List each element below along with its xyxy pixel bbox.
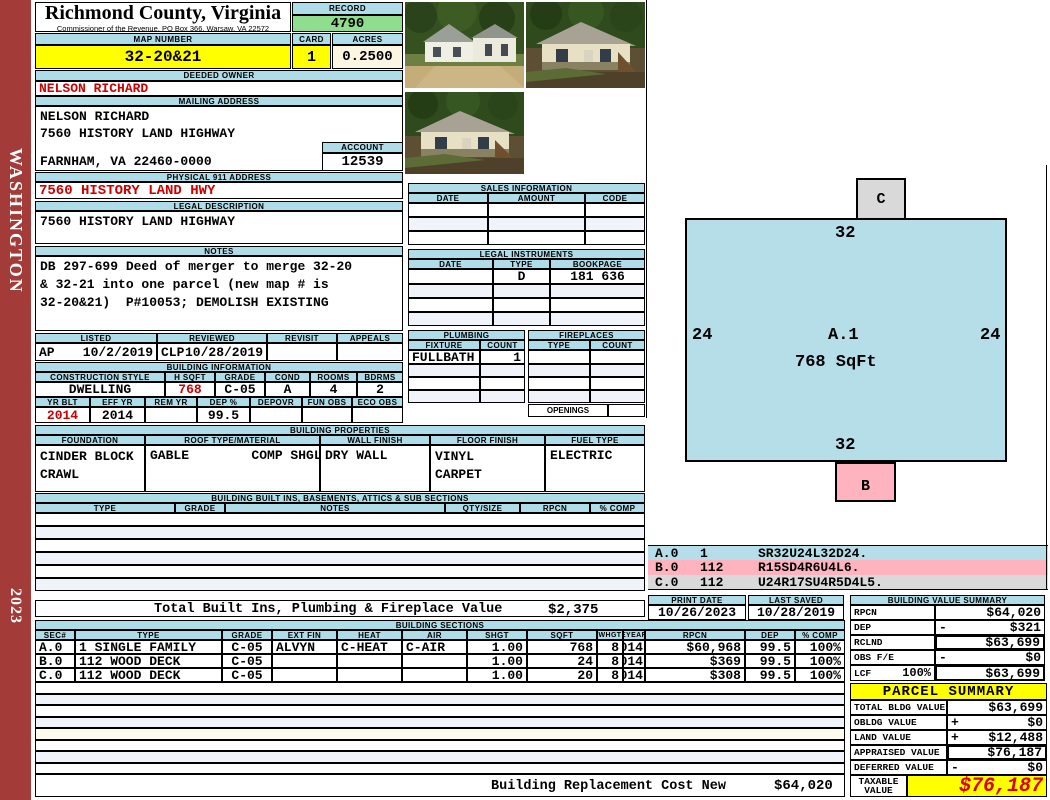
- ps-label-land: LAND VALUE: [850, 730, 947, 745]
- built-ins-total-row: Total Built Ins, Plumbing & Fireplace Va…: [35, 600, 645, 617]
- yrblt-label: YR BLT: [35, 397, 90, 407]
- sales-information-label: SALES INFORMATION: [408, 183, 645, 193]
- listed-code: AP: [39, 345, 55, 360]
- li-row: [408, 298, 493, 312]
- built-ins-row: [35, 578, 645, 591]
- bs-row-c-eyear: 2014: [623, 668, 645, 682]
- sketch-dim-right: 24: [980, 326, 1000, 345]
- ps-land-value: $12,488: [988, 730, 1043, 745]
- bs-h-dep: DEP: [745, 630, 795, 640]
- bs-row-c-heat: [337, 668, 402, 682]
- plumbing-count-label: COUNT: [480, 340, 525, 350]
- bs-row-b-type: 112 WOOD DECK: [75, 654, 222, 668]
- plus-sign: +: [951, 730, 959, 745]
- legal-description-label: LEGAL DESCRIPTION: [35, 201, 403, 211]
- county-title: Richmond County, Virginia: [36, 3, 290, 24]
- vs-rpcn-label: RPCN: [854, 607, 877, 618]
- openings-label: OPENINGS: [528, 404, 608, 417]
- ecoobs-label: ECO OBS: [352, 397, 403, 407]
- sketch-dim-top: 32: [835, 224, 855, 243]
- bs-row-b-comp: 100%: [795, 654, 845, 668]
- vs-value-dep: - $321: [935, 620, 1045, 635]
- fixture-label: FIXTURE: [408, 340, 480, 350]
- replacement-cost-label: Building Replacement Cost New: [491, 779, 726, 794]
- bs-row-c-comp: 100%: [795, 668, 845, 682]
- legend-code: B.0: [648, 560, 700, 575]
- notes-line-3: 32-20&21) P#10053; DEMOLISH EXISTING: [40, 295, 329, 310]
- listed-value: AP 10/2/2019: [35, 343, 157, 361]
- vs-lcf-label: LCF: [854, 668, 871, 679]
- bs-row-b-air: [402, 654, 467, 668]
- built-ins-row: [35, 539, 645, 552]
- floor-finish-line-2: CARPET: [435, 466, 482, 483]
- appeals-label: APPEALS: [337, 333, 403, 343]
- bs-row-c-air: [402, 668, 467, 682]
- openings-value: [608, 404, 645, 417]
- bi-notes-label: NOTES: [225, 503, 445, 513]
- mailing-line-2: 7560 HISTORY LAND HIGHWAY: [40, 126, 235, 141]
- bs-row-c-sec: C.0: [35, 668, 75, 682]
- fireplace-row: [528, 377, 590, 390]
- li-type-value: D: [493, 269, 550, 284]
- bs-row-a-rpcn: $60,968: [645, 640, 745, 654]
- ps-value-deferred: - $0: [947, 760, 1047, 775]
- sales-row: [408, 203, 488, 217]
- bs-empty-row: [35, 763, 845, 774]
- listed-label: LISTED: [35, 333, 157, 343]
- bs-row-c-rpcn: $308: [645, 668, 745, 682]
- fireplace-type-value: [528, 350, 590, 364]
- bs-row-a-heat: C-HEAT: [337, 640, 402, 654]
- li-row: [408, 284, 493, 298]
- hsqft-label: H SQFT: [165, 372, 215, 382]
- bs-h-rpcn: RPCN: [645, 630, 745, 640]
- listed-date: 10/2/2019: [83, 345, 153, 360]
- bs-empty-row: [35, 740, 845, 751]
- bs-row-c-type: 112 WOOD DECK: [75, 668, 222, 682]
- li-date-value: [408, 269, 493, 284]
- ps-value-land: + $12,488: [947, 730, 1047, 745]
- county-subtitle: Commissioner of the Revenue, PO Box 366,…: [36, 24, 290, 33]
- notes-label: NOTES: [35, 246, 403, 256]
- li-bookpage-label: BOOKPAGE: [550, 259, 645, 269]
- fireplace-row: [528, 390, 590, 403]
- bs-row-a-comp: 100%: [795, 640, 845, 654]
- sales-code-label: CODE: [585, 193, 645, 203]
- fireplace-count-label: COUNT: [590, 340, 645, 350]
- bs-row-c-shgt: 1.00: [467, 668, 527, 682]
- sales-row: [488, 203, 585, 217]
- bs-h-heat: HEAT: [337, 630, 402, 640]
- building-value-summary-label: BUILDING VALUE SUMMARY: [850, 595, 1045, 605]
- sketch-dim-bottom: 32: [835, 436, 855, 455]
- replacement-cost-row: Building Replacement Cost New $64,020: [35, 774, 845, 797]
- district-vertical-label: WASHINGTON: [5, 148, 26, 294]
- bs-row-a-grade: C-05: [222, 640, 272, 654]
- bi-grade-label: GRADE: [175, 503, 225, 513]
- bdrms-label: BDRMS: [357, 372, 403, 382]
- fuel-type-value: ELECTRIC: [545, 445, 645, 492]
- bs-row-a-dep: 99.5: [745, 640, 795, 654]
- physical-911-value: 7560 HISTORY LAND HWY: [35, 182, 403, 199]
- record-value: 4790: [292, 15, 403, 32]
- property-photo-3[interactable]: [405, 92, 524, 174]
- property-record-card: WASHINGTON 2023 Richmond County, Virgini…: [0, 0, 1050, 800]
- rooms-value: 4: [310, 382, 357, 397]
- floor-finish-label: FLOOR FINISH: [430, 435, 545, 445]
- divider-sketch-right: [1046, 165, 1047, 590]
- grade-value: C-05: [215, 382, 265, 397]
- bi-qty-label: QTY/SIZE: [445, 503, 520, 513]
- effyr-label: EFF YR: [90, 397, 145, 407]
- built-ins-row: [35, 513, 645, 526]
- vs-label-obs: OBS F/E: [850, 650, 935, 665]
- bs-row-a-sqft: 768: [527, 640, 597, 654]
- sales-row: [408, 217, 488, 231]
- wall-finish-value: DRY WALL: [320, 445, 430, 492]
- sketch-main-section: 32 24 A.1 768 SqFt 24 32: [685, 218, 1007, 462]
- bs-h-eyear: EYEAR: [623, 630, 645, 640]
- minus-sign: -: [951, 760, 959, 775]
- depovr-value: [250, 407, 302, 423]
- roof-value: GABLE COMP SHGLS: [145, 445, 320, 492]
- wall-finish-label: WALL FINISH: [320, 435, 430, 445]
- physical-911-label: PHYSICAL 911 ADDRESS: [35, 172, 403, 182]
- legal-description-value: 7560 HISTORY LAND HIGHWAY: [35, 211, 403, 244]
- county-title-box: Richmond County, Virginia Commissioner o…: [35, 2, 291, 32]
- ps-obldg-label: OBLDG VALUE: [854, 717, 917, 728]
- ps-label-deferred: DEFERRED VALUE: [850, 760, 947, 775]
- fuel-type-label: FUEL TYPE: [545, 435, 645, 445]
- bs-row-b-rpcn: $369: [645, 654, 745, 668]
- bs-h-sec: SEC#: [35, 630, 75, 640]
- vs-obs-value: $0: [1025, 650, 1041, 665]
- depovr-label: DEPOVR: [250, 397, 302, 407]
- deeded-owner-label: DEEDED OWNER: [35, 70, 403, 81]
- ps-obldg-value: $0: [1027, 715, 1043, 730]
- replacement-cost-value: $64,020: [774, 778, 833, 794]
- deeded-owner-value: NELSON RICHARD: [35, 81, 403, 96]
- sales-row: [585, 217, 645, 231]
- account-label: ACCOUNT: [322, 142, 403, 153]
- bi-type-label: TYPE: [35, 503, 175, 513]
- legal-instruments-label: LEGAL INSTRUMENTS: [408, 249, 645, 259]
- li-date-label: DATE: [408, 259, 493, 269]
- sketch-section-b-label: B: [861, 478, 870, 495]
- bs-row-c-dep: 99.5: [745, 668, 795, 682]
- parcel-summary-header: PARCEL SUMMARY: [850, 683, 1047, 700]
- effyr-value: 2014: [90, 407, 145, 423]
- bs-row-a-eyear: 2014: [623, 640, 645, 654]
- record-label: RECORD: [292, 2, 403, 15]
- vs-rclnd-label: RCLND: [854, 637, 883, 648]
- vs-lcf-pct: 100%: [902, 666, 931, 680]
- bs-row-b-whgt: 8: [597, 654, 623, 668]
- roof-label: ROOF TYPE/MATERIAL: [145, 435, 320, 445]
- acres-label: ACRES: [332, 33, 403, 45]
- bs-h-type: TYPE: [75, 630, 222, 640]
- built-ins-label: BUILDING BUILT INS, BASEMENTS, ATTICS & …: [35, 493, 645, 503]
- vs-value-rclnd: $63,699: [935, 635, 1045, 650]
- sketch-section-c-box: C: [856, 178, 906, 220]
- bi-comp-label: % COMP: [590, 503, 645, 513]
- year-district-sidebar: WASHINGTON 2023: [0, 0, 31, 800]
- plumbing-row: [480, 377, 525, 390]
- remyr-label: REM YR: [145, 397, 197, 407]
- rooms-label: ROOMS: [310, 372, 357, 382]
- bdrms-value: 2: [357, 382, 403, 397]
- bs-h-shgt: SHGT: [467, 630, 527, 640]
- li-row: [550, 298, 645, 312]
- ps-value-obldg: + $0: [947, 715, 1047, 730]
- card-label: CARD: [292, 33, 331, 45]
- vs-obs-label: OBS F/E: [854, 652, 894, 663]
- sales-row: [488, 231, 585, 245]
- fireplace-row: [528, 364, 590, 377]
- sketch-legend-row-a: A.0 1 SR32U24L32D24.: [648, 545, 1048, 560]
- li-row: [550, 284, 645, 298]
- bs-row-a-whgt: 8: [597, 640, 623, 654]
- notes-box: DB 297-699 Deed of merger to merge 32-20…: [35, 256, 403, 331]
- print-date-label: PRINT DATE: [648, 595, 746, 605]
- built-ins-row: [35, 526, 645, 539]
- notes-line-1: DB 297-699 Deed of merger to merge 32-20: [40, 259, 352, 274]
- li-row: [493, 312, 550, 326]
- li-row: [550, 312, 645, 326]
- appeals-value: [337, 343, 403, 361]
- mailing-address-label: MAILING ADDRESS: [35, 96, 403, 106]
- mailing-line-1: NELSON RICHARD: [40, 109, 149, 124]
- construction-style-value: DWELLING: [35, 382, 165, 397]
- plus-sign: +: [951, 715, 959, 730]
- account-value: 12539: [322, 153, 403, 171]
- ps-deferred-value: $0: [1027, 760, 1043, 775]
- cond-value: A: [265, 382, 310, 397]
- bs-row-c-grade: C-05: [222, 668, 272, 682]
- plumbing-row: [408, 364, 480, 377]
- ps-label-totalbldg: TOTAL BLDG VALUE: [850, 700, 947, 715]
- cond-label: COND: [265, 372, 310, 382]
- yrblt-value: 2014: [35, 407, 90, 423]
- fireplace-count-value: [590, 350, 645, 364]
- vs-value-obs: - $0: [935, 650, 1045, 665]
- building-information-label: BUILDING INFORMATION: [35, 362, 403, 372]
- ps-value-totalbldg: $63,699: [947, 700, 1047, 715]
- bs-row-a-shgt: 1.00: [467, 640, 527, 654]
- bs-h-comp: % COMP: [795, 630, 845, 640]
- li-row: [408, 312, 493, 326]
- fireplace-row: [590, 390, 645, 403]
- built-ins-row: [35, 552, 645, 565]
- reviewed-value: CLP 10/28/2019: [157, 343, 267, 361]
- sales-row: [488, 217, 585, 231]
- construction-style-label: CONSTRUCTION STYLE: [35, 372, 165, 382]
- plumbing-row: [408, 377, 480, 390]
- ecoobs-value: [352, 407, 403, 423]
- fireplace-type-label: TYPE: [528, 340, 590, 350]
- plumbing-label: PLUMBING: [408, 330, 525, 340]
- reviewed-code: CLP: [161, 345, 184, 360]
- floor-finish-line-1: VINYL: [435, 448, 474, 465]
- building-sections-label: BUILDING SECTIONS: [35, 620, 845, 630]
- bs-h-air: AIR: [402, 630, 467, 640]
- sales-date-label: DATE: [408, 193, 488, 203]
- ps-label-obldg: OBLDG VALUE: [850, 715, 947, 730]
- funobs-label: FUN OBS: [302, 397, 352, 407]
- minus-sign: -: [939, 650, 947, 665]
- fixture-count-value: 1: [480, 350, 525, 364]
- bs-row-b-sqft: 24: [527, 654, 597, 668]
- sketch-dim-left: 24: [692, 326, 712, 345]
- plumbing-row: [480, 390, 525, 403]
- legend-qty: 112: [700, 575, 758, 590]
- bs-row-c-extfin: [272, 668, 337, 682]
- built-ins-row: [35, 565, 645, 578]
- bs-row-b-dep: 99.5: [745, 654, 795, 668]
- map-number-label: MAP NUMBER: [35, 33, 291, 45]
- bs-row-b-heat: [337, 654, 402, 668]
- vs-dep-value: $321: [1010, 620, 1041, 635]
- revisit-value: [267, 343, 337, 361]
- deppct-label: DEP %: [197, 397, 250, 407]
- bs-row-a-type: 1 SINGLE FAMILY: [75, 640, 222, 654]
- remyr-value: [145, 407, 197, 423]
- funobs-value: [302, 407, 352, 423]
- bs-row-c-sqft: 20: [527, 668, 597, 682]
- bs-row-c-whgt: 8: [597, 668, 623, 682]
- fireplaces-label: FIREPLACES: [528, 330, 645, 340]
- sketch-section-sqft: 768 SqFt: [795, 353, 877, 372]
- ps-land-label: LAND VALUE: [854, 732, 911, 743]
- ps-appraised-label: APPRAISED VALUE: [854, 747, 940, 758]
- divider-middle-column: [646, 0, 647, 418]
- taxable-value-label: TAXABLE VALUE: [850, 775, 907, 797]
- bs-h-extfin: EXT FIN: [272, 630, 337, 640]
- vs-dep-label: DEP: [854, 622, 871, 633]
- bs-row-b-shgt: 1.00: [467, 654, 527, 668]
- sketch-legend-row-b: B.0 112 R15SD4R6U4L6.: [648, 560, 1048, 575]
- vs-label-lcf: LCF 100%: [850, 665, 935, 681]
- acres-value: 0.2500: [332, 45, 403, 69]
- bs-empty-row: [35, 728, 845, 740]
- taxable-value: $76,187: [907, 775, 1047, 797]
- legend-qty: 112: [700, 560, 758, 575]
- built-ins-total-value: $2,375: [548, 602, 598, 617]
- bs-h-whgt: WHGT: [597, 630, 623, 640]
- foundation-label: FOUNDATION: [35, 435, 145, 445]
- property-photo-2[interactable]: [526, 2, 645, 88]
- vs-label-rclnd: RCLND: [850, 635, 935, 650]
- bs-empty-row: [35, 717, 845, 728]
- sketch-legend-row-c: C.0 112 U24R17SU4R5D4L5.: [648, 575, 1048, 590]
- ps-totalbldg-label: TOTAL BLDG VALUE: [854, 702, 945, 713]
- taxable-label-text: TAXABLE VALUE: [854, 777, 903, 795]
- sales-row: [408, 231, 488, 245]
- legend-qty: 1: [700, 546, 758, 561]
- vs-value-lcf: $63,699: [935, 665, 1045, 681]
- bs-row-b-grade: C-05: [222, 654, 272, 668]
- bs-h-sqft: SQFT: [527, 630, 597, 640]
- card-value: 1: [292, 45, 331, 69]
- ps-label-appraised: APPRAISED VALUE: [850, 745, 947, 760]
- bs-row-b-sec: B.0: [35, 654, 75, 668]
- hsqft-value: 768: [165, 382, 215, 397]
- reviewed-date: 10/28/2019: [185, 345, 263, 360]
- bs-empty-row: [35, 682, 845, 694]
- bs-h-grade: GRADE: [222, 630, 272, 640]
- building-properties-label: BUILDING PROPERTIES: [35, 425, 645, 435]
- legend-code: A.0: [648, 546, 700, 561]
- minus-sign: -: [939, 620, 947, 635]
- grade-label: GRADE: [215, 372, 265, 382]
- last-saved-value: 10/28/2019: [748, 605, 844, 620]
- bs-row-b-eyear: 2014: [623, 654, 645, 668]
- notes-line-2: & 32-21 into one parcel (new map # is: [40, 277, 329, 292]
- legend-path: R15SD4R6U4L6.: [758, 560, 859, 575]
- fireplace-row: [590, 364, 645, 377]
- legend-path: U24R17SU4R5D4L5.: [758, 575, 883, 590]
- floor-finish-value: VINYL CARPET: [430, 445, 545, 492]
- property-photo-1[interactable]: [405, 2, 524, 88]
- revisit-label: REVISIT: [267, 333, 337, 343]
- bs-row-a-sec: A.0: [35, 640, 75, 654]
- sales-row: [585, 231, 645, 245]
- built-ins-total-label: Total Built Ins, Plumbing & Fireplace Va…: [154, 602, 502, 617]
- print-date-value: 10/26/2023: [648, 605, 746, 620]
- vs-label-rpcn: RPCN: [850, 605, 935, 620]
- foundation-line-1: CINDER BLOCK: [40, 448, 134, 465]
- bs-empty-row: [35, 694, 845, 705]
- fixture-value: FULLBATH: [408, 350, 480, 364]
- fireplace-row: [590, 377, 645, 390]
- bs-row-a-extfin: ALVYN: [272, 640, 337, 654]
- legend-code: C.0: [648, 575, 700, 590]
- li-row: [493, 284, 550, 298]
- sales-amount-label: AMOUNT: [488, 193, 585, 203]
- parcel-summary-title: PARCEL SUMMARY: [883, 684, 1015, 700]
- bi-rpcn-label: RPCN: [520, 503, 590, 513]
- sketch-section-c-label: C: [876, 191, 885, 208]
- sketch-section-b-box: B: [835, 462, 896, 502]
- vs-value-rpcn: $64,020: [935, 605, 1045, 620]
- vs-label-dep: DEP: [850, 620, 935, 635]
- li-bookpage-value: 181 636: [550, 269, 645, 284]
- last-saved-label: LAST SAVED: [748, 595, 844, 605]
- ps-value-appraised: $76,187: [947, 745, 1047, 760]
- year-vertical-label: 2023: [6, 588, 24, 624]
- bs-empty-row: [35, 705, 845, 717]
- sketch-section-id: A.1: [828, 326, 859, 345]
- li-type-label: TYPE: [493, 259, 550, 269]
- foundation-value: CINDER BLOCK CRAWL: [35, 445, 145, 492]
- sales-row: [585, 203, 645, 217]
- foundation-line-2: CRAWL: [40, 466, 79, 483]
- bs-empty-row: [35, 751, 845, 763]
- reviewed-label: REVIEWED: [157, 333, 267, 343]
- plumbing-row: [480, 364, 525, 377]
- li-row: [493, 298, 550, 312]
- plumbing-row: [408, 390, 480, 403]
- bs-row-a-air: C-AIR: [402, 640, 467, 654]
- deppct-value: 99.5: [197, 407, 250, 423]
- mailing-line-3: FARNHAM, VA 22460-0000: [40, 154, 212, 169]
- ps-deferred-label: DEFERRED VALUE: [854, 762, 934, 773]
- legend-path: SR32U24L32D24.: [758, 546, 867, 561]
- map-number-value: 32-20&21: [35, 45, 291, 69]
- bs-row-b-extfin: [272, 654, 337, 668]
